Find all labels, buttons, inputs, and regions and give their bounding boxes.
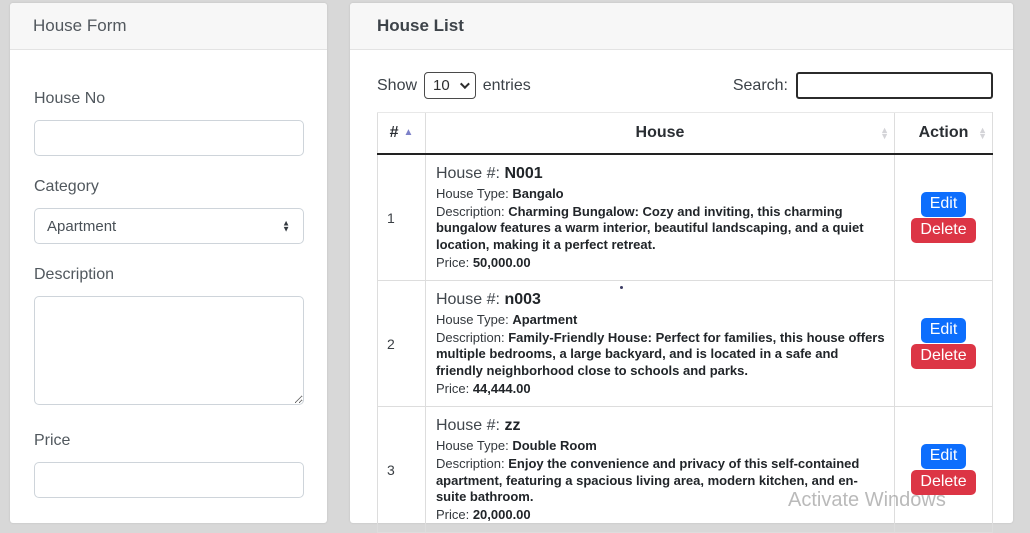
price-value: 20,000.00	[473, 507, 531, 522]
row-action-cell: Edit Delete	[895, 281, 993, 407]
row-house-cell: House #: zz House Type: Double Room Desc…	[425, 407, 894, 533]
description-line: Description: Family-Friendly House: Perf…	[436, 330, 886, 380]
table-row: 3 House #: zz House Type: Double Room De…	[378, 407, 993, 533]
house-no-field-label: House #:	[436, 165, 500, 182]
delete-button[interactable]: Delete	[911, 344, 975, 369]
row-index-cell: 2	[378, 281, 426, 407]
page-length-value: 10	[433, 77, 450, 94]
house-no-input[interactable]	[34, 120, 304, 156]
table-row: 1 House #: N001 House Type: Bangalo Desc…	[378, 154, 993, 281]
house-type-value: Apartment	[512, 312, 577, 327]
row-action-cell: Edit Delete	[895, 154, 993, 281]
house-no-line: House #: zz	[436, 417, 886, 435]
sort-asc-icon: ▲	[403, 127, 413, 138]
activate-windows-watermark: Activate Windows	[788, 489, 946, 512]
house-no-line: House #: n003	[436, 291, 886, 309]
house-type-value: Bangalo	[512, 186, 563, 201]
house-form-body: House No Category Apartment ▲▼ Descripti…	[10, 50, 327, 498]
edit-button[interactable]: Edit	[921, 444, 967, 469]
description-field-label: Description:	[436, 330, 505, 345]
price-line: Price: 50,000.00	[436, 255, 886, 272]
edit-button[interactable]: Edit	[921, 318, 967, 343]
column-number-label: #	[390, 124, 399, 141]
price-field-label: Price:	[436, 255, 469, 270]
price-value: 50,000.00	[473, 255, 531, 270]
description-label: Description	[34, 266, 304, 284]
column-action-label: Action	[919, 124, 969, 141]
price-input[interactable]	[34, 462, 304, 498]
house-no-value: zz	[504, 417, 520, 434]
category-select[interactable]: Apartment ▲▼	[34, 208, 304, 244]
house-no-label: House No	[34, 90, 304, 108]
category-selected-value: Apartment	[47, 218, 116, 235]
house-no-field-label: House #:	[436, 291, 500, 308]
row-action-cell: Edit Delete	[895, 407, 993, 533]
chevron-down-icon	[460, 79, 470, 89]
house-no-value: N001	[504, 165, 542, 182]
row-index-cell: 3	[378, 407, 426, 533]
house-list-title: House List	[377, 16, 464, 36]
house-no-line: House #: N001	[436, 165, 886, 183]
page-length-select[interactable]: 10	[424, 72, 476, 99]
house-type-line: House Type: Apartment	[436, 312, 886, 329]
column-house-label: House	[636, 124, 685, 141]
house-type-field-label: House Type:	[436, 438, 509, 453]
description-textarea[interactable]	[34, 296, 304, 405]
search-control: Search:	[733, 72, 993, 99]
table-controls: Show 10 entries Search:	[377, 72, 993, 99]
column-header-house[interactable]: House ▲▼	[425, 113, 894, 155]
house-type-field-label: House Type:	[436, 186, 509, 201]
action-stack: Edit Delete	[903, 318, 984, 369]
row-house-cell: House #: n003 House Type: Apartment Desc…	[425, 281, 894, 407]
table-header-row: #▲ House ▲▼ Action ▲▼	[378, 113, 993, 155]
description-line: Description: Charming Bungalow: Cozy and…	[436, 204, 886, 254]
price-group: Price	[34, 432, 304, 498]
description-field-label: Description:	[436, 456, 505, 471]
house-type-field-label: House Type:	[436, 312, 509, 327]
delete-button[interactable]: Delete	[911, 218, 975, 243]
sort-both-icon: ▲▼	[978, 127, 987, 139]
entries-label: entries	[483, 77, 531, 95]
house-form-title: House Form	[33, 16, 127, 36]
house-form-header: House Form	[10, 3, 327, 50]
table-body: 1 House #: N001 House Type: Bangalo Desc…	[378, 154, 993, 533]
price-value: 44,444.00	[473, 381, 531, 396]
show-label: Show	[377, 77, 417, 95]
house-no-group: House No	[34, 90, 304, 156]
select-updown-icon: ▲▼	[282, 221, 290, 232]
table-row: 2 House #: n003 House Type: Apartment De…	[378, 281, 993, 407]
row-index-cell: 1	[378, 154, 426, 281]
house-table: #▲ House ▲▼ Action ▲▼ 1 House #: N001	[377, 112, 993, 533]
price-field-label: Price:	[436, 507, 469, 522]
house-no-field-label: House #:	[436, 417, 500, 434]
price-line: Price: 44,444.00	[436, 381, 886, 398]
description-group: Description	[34, 266, 304, 410]
column-header-number[interactable]: #▲	[378, 113, 426, 155]
house-list-header: House List	[350, 3, 1013, 50]
house-form-card: House Form House No Category Apartment ▲…	[10, 3, 327, 523]
price-field-label: Price:	[436, 381, 469, 396]
price-label: Price	[34, 432, 304, 450]
search-input[interactable]	[796, 72, 993, 99]
show-entries-control: Show 10 entries	[377, 72, 531, 99]
action-stack: Edit Delete	[903, 444, 984, 495]
house-type-line: House Type: Double Room	[436, 438, 886, 455]
description-field-label: Description:	[436, 204, 505, 219]
category-group: Category Apartment ▲▼	[34, 178, 304, 244]
stray-cursor-dot	[620, 286, 623, 289]
edit-button[interactable]: Edit	[921, 192, 967, 217]
house-type-line: House Type: Bangalo	[436, 186, 886, 203]
category-label: Category	[34, 178, 304, 196]
house-type-value: Double Room	[512, 438, 597, 453]
house-list-card: House List Show 10 entries Search: #▲	[350, 3, 1013, 523]
column-header-action[interactable]: Action ▲▼	[895, 113, 993, 155]
row-house-cell: House #: N001 House Type: Bangalo Descri…	[425, 154, 894, 281]
sort-both-icon: ▲▼	[880, 127, 889, 139]
search-label: Search:	[733, 77, 788, 95]
house-list-body: Show 10 entries Search: #▲ Hous	[350, 50, 1013, 533]
action-stack: Edit Delete	[903, 192, 984, 243]
house-no-value: n003	[504, 291, 540, 308]
